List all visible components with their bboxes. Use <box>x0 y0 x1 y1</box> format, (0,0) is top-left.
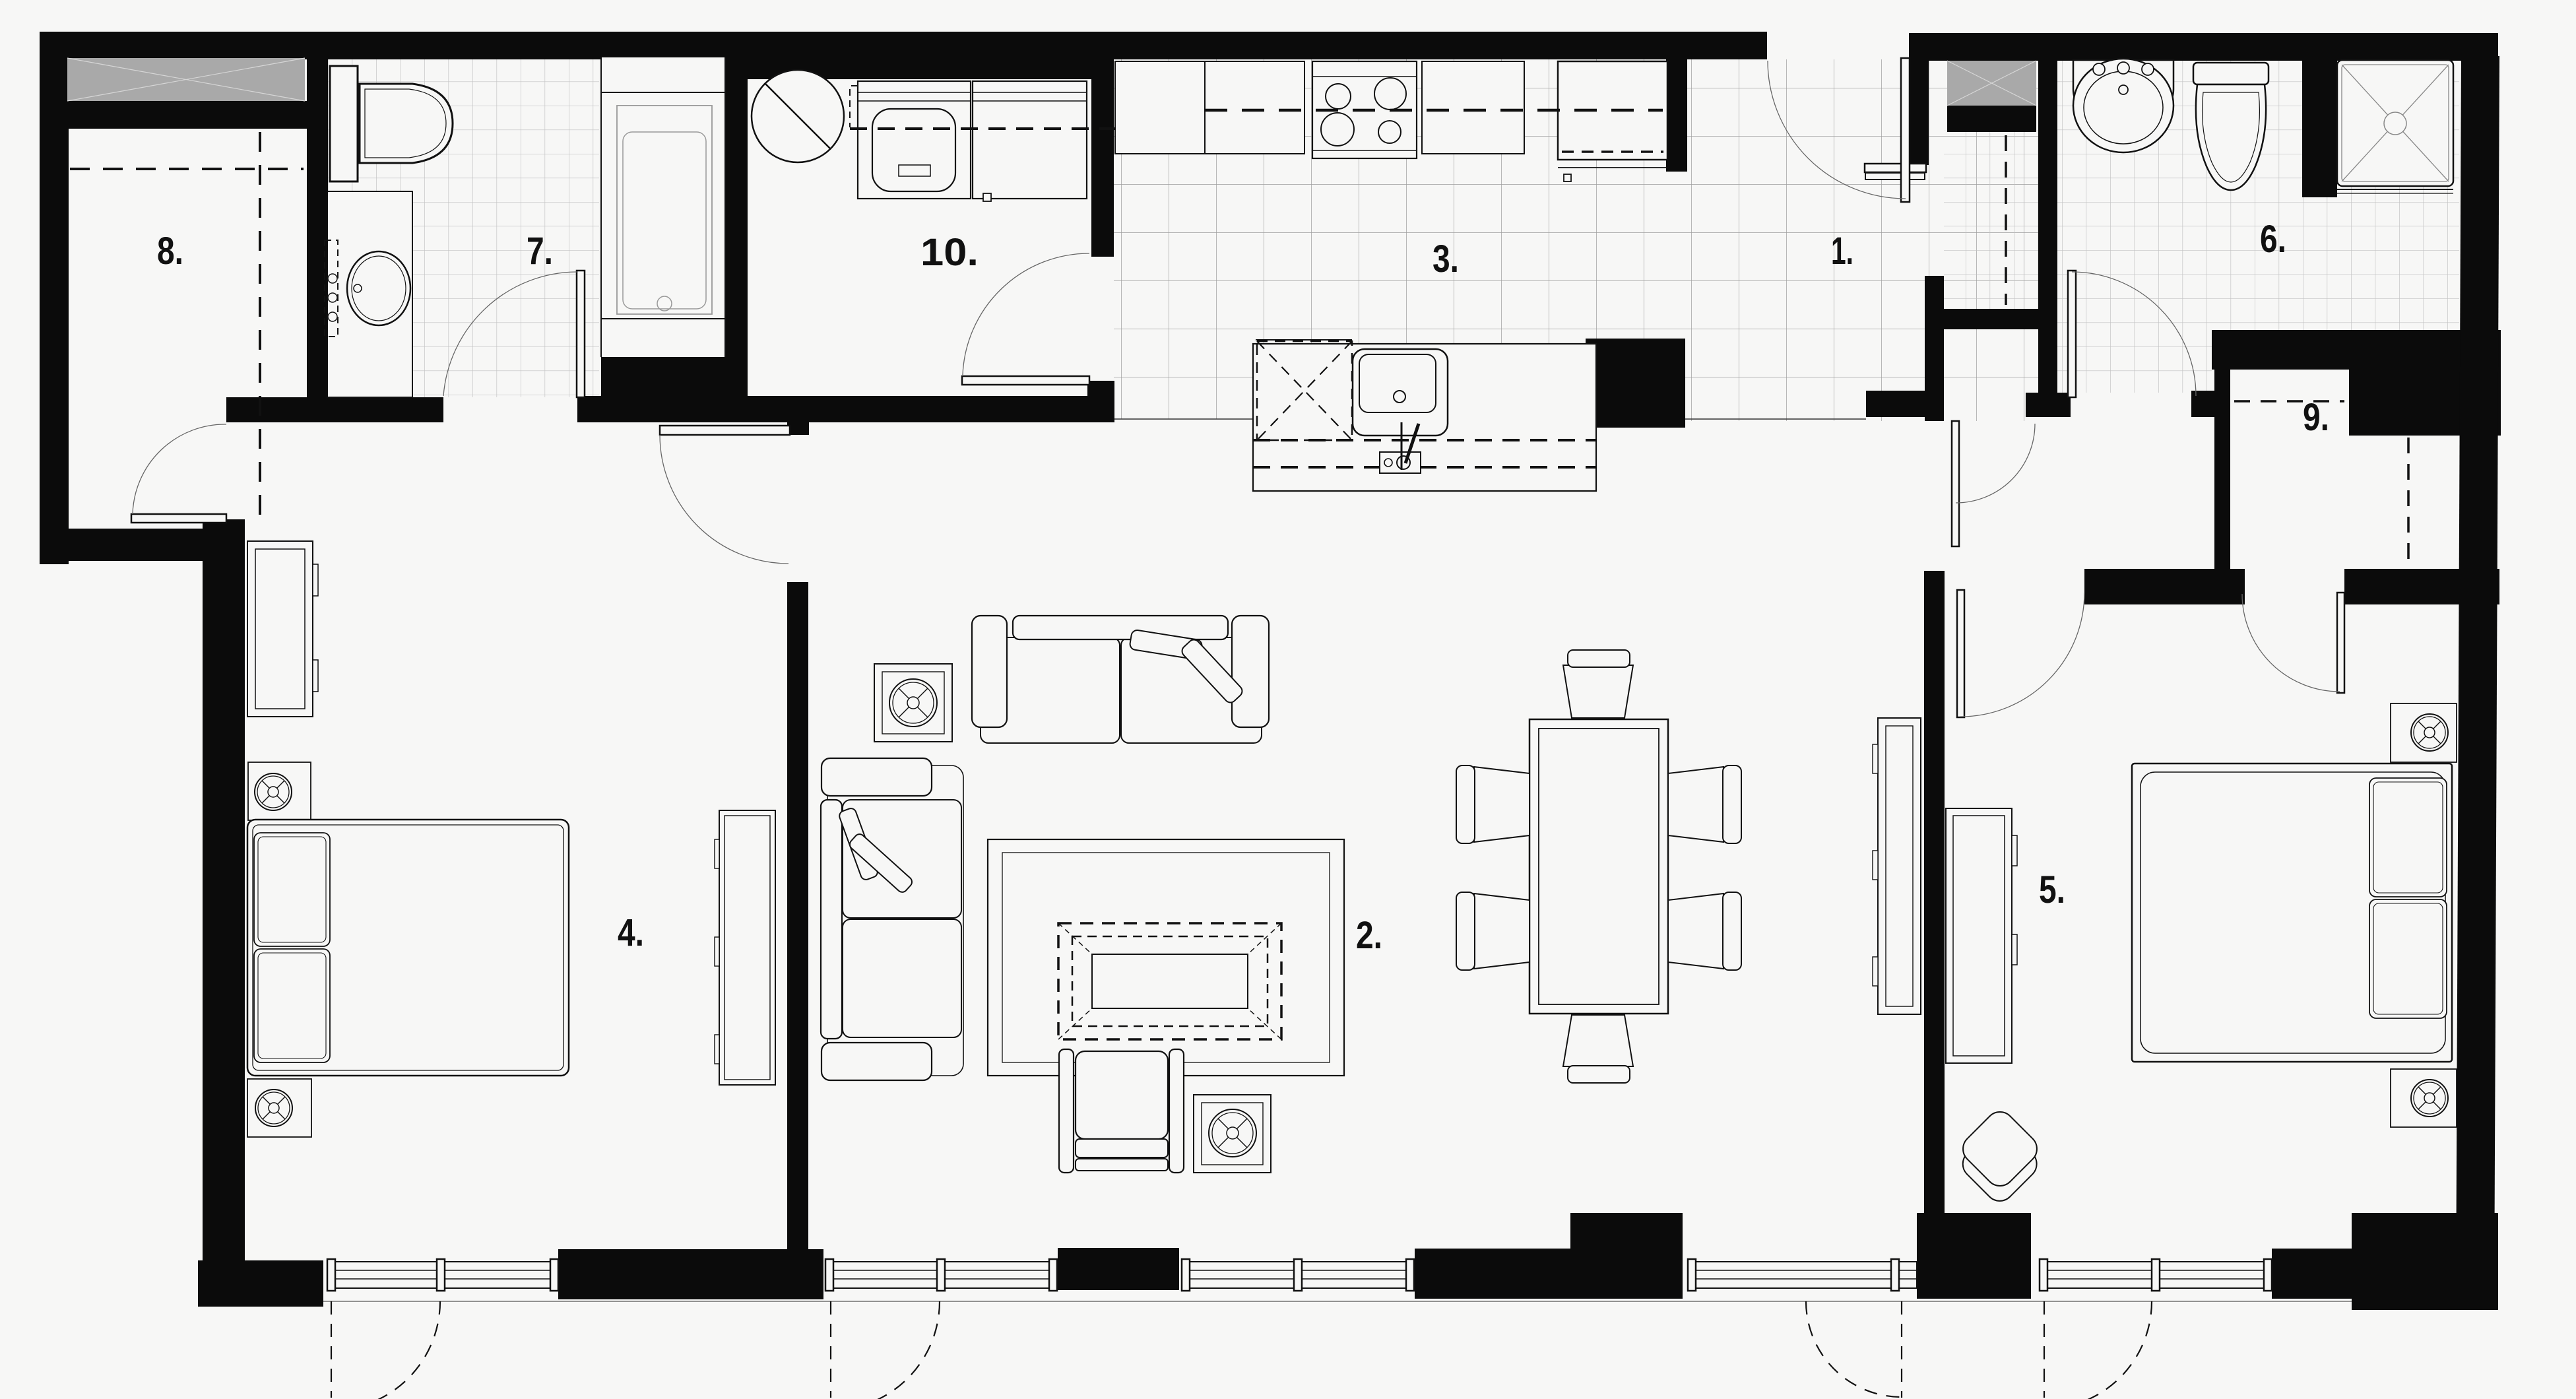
svg-text:7.: 7. <box>527 230 553 273</box>
svg-text:4.: 4. <box>618 911 644 954</box>
svg-text:5.: 5. <box>2039 868 2065 911</box>
svg-text:1.: 1. <box>1831 230 1853 273</box>
svg-text:6.: 6. <box>2260 218 2286 261</box>
svg-text:10.: 10. <box>920 231 979 274</box>
svg-text:2.: 2. <box>1356 914 1382 957</box>
svg-text:9.: 9. <box>2303 396 2329 439</box>
svg-text:3.: 3. <box>1433 238 1459 280</box>
svg-text:8.: 8. <box>157 230 183 273</box>
